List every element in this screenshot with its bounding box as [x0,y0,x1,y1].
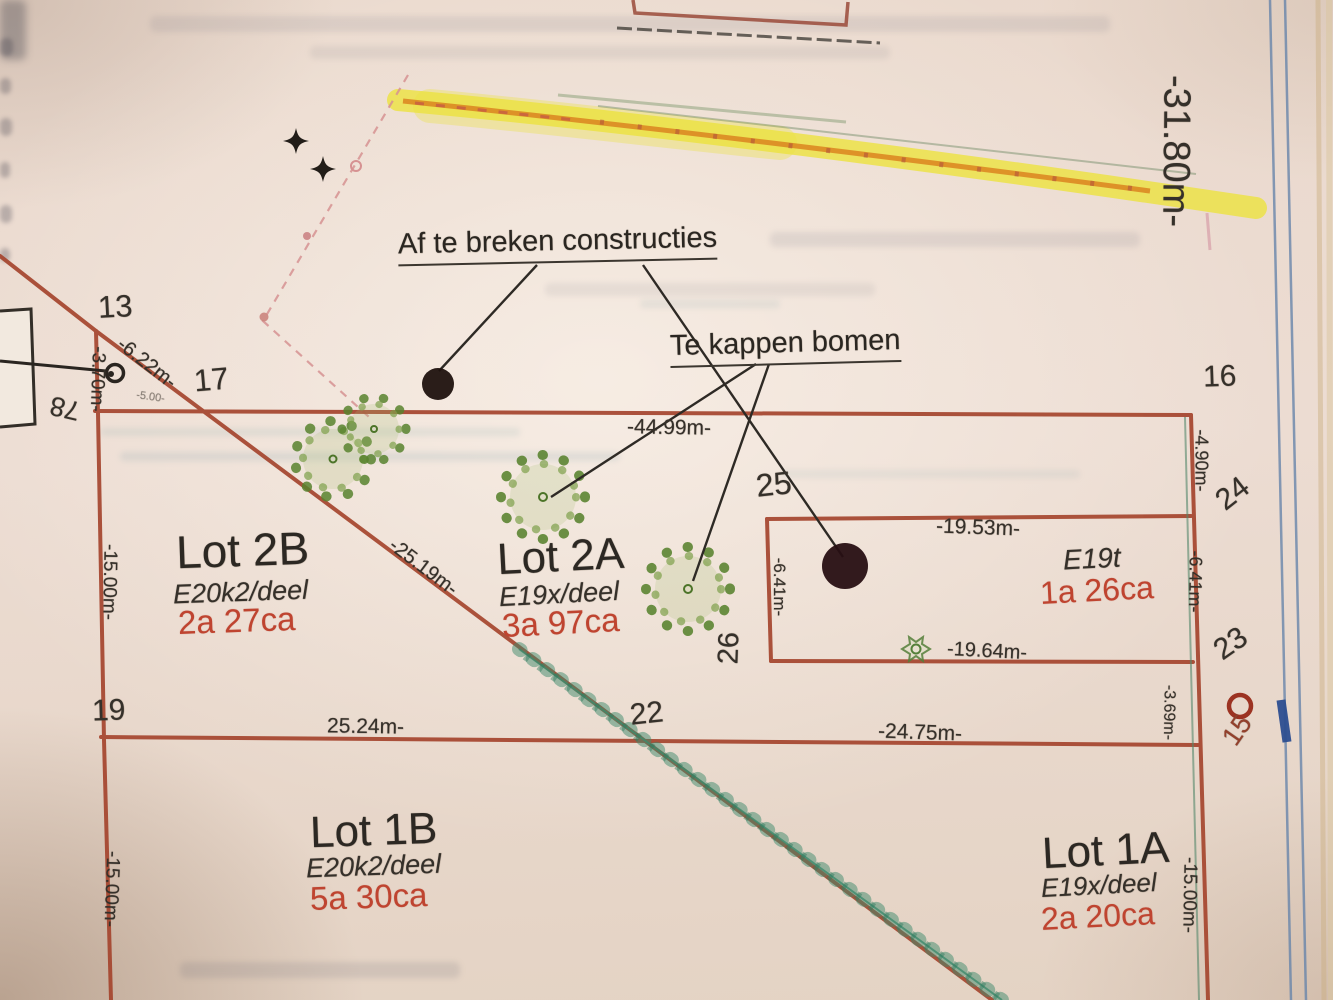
leader-line [643,265,843,557]
dimension-3-70: -3.70m- [86,343,108,416]
lot-2b-area: 2a 27ca [177,602,296,641]
blue-ink-mark [1281,700,1287,742]
annotation-fell-trees: Te kappen bomen [670,325,901,368]
demolition-dot [822,543,868,589]
old-boundary-dashed [263,75,408,417]
point-78: 78 [47,391,83,425]
building-outline [0,309,35,427]
point-22: 22 [628,696,664,731]
dimension-15-00-left-lower: -15.00m- [100,850,123,929]
star-symbol-icon [310,156,336,182]
point-19: 19 [91,694,125,727]
tree-icon [501,455,585,539]
dimension-3-69: -3.69m- [1159,683,1177,741]
point-26: 26 [713,632,745,665]
dimension-44-99: -44.99m- [627,416,711,440]
dimension-24-75: -24.75m- [878,721,963,746]
survey-marker-dot [108,371,114,377]
lot-1a-area: 2a 20ca [1040,897,1155,937]
tree-icon [646,547,730,631]
leader-line [439,265,537,371]
dimension-4-90: -4.90m- [1192,427,1211,493]
dimension-19-64: -19.64m- [947,639,1028,664]
cadastral-plan-scan: Af te breken constructies Te kappen bome… [0,0,1333,1000]
dimension-6-41-box: -6.41m- [770,556,788,618]
annotation-demolish: Af te breken constructies [398,223,718,267]
star-symbol-icon [283,128,309,154]
e19t-name: E19t [1062,543,1121,575]
old-boundary-marker [303,232,311,240]
e19t-area: 1a 26ca [1039,571,1154,611]
building-outline [633,0,848,25]
demolition-dot [422,368,454,400]
dimension-19-53: -19.53m- [936,516,1021,541]
dimension-15-00-left-upper: -15.00m- [98,543,119,621]
point-17: 17 [193,363,230,398]
pink-mark [1207,213,1210,250]
flower-symbol-center [912,645,921,654]
dimension-25-24: 25.24m- [327,715,404,738]
dimension-15-00-right: -15.00m- [1178,856,1199,934]
dashed-line [617,28,880,43]
old-boundary-marker [260,313,269,322]
lot-1b-area: 5a 30ca [309,878,428,917]
point-25: 25 [754,466,793,503]
page-edge-line [1318,0,1324,1000]
lot-2b-name: Lot 2B [175,524,310,577]
lot-2a-area: 3a 97ca [501,603,620,644]
dimension-6-41-right: -6.41m- [1185,548,1205,614]
point-13: 13 [97,290,133,324]
page-edge-line [1329,0,1331,1000]
old-boundary-marker [351,161,361,171]
dimension-31-80: -31.80m- [1154,66,1195,236]
point-16: 16 [1202,360,1236,393]
boundary-line-top [95,411,1191,415]
